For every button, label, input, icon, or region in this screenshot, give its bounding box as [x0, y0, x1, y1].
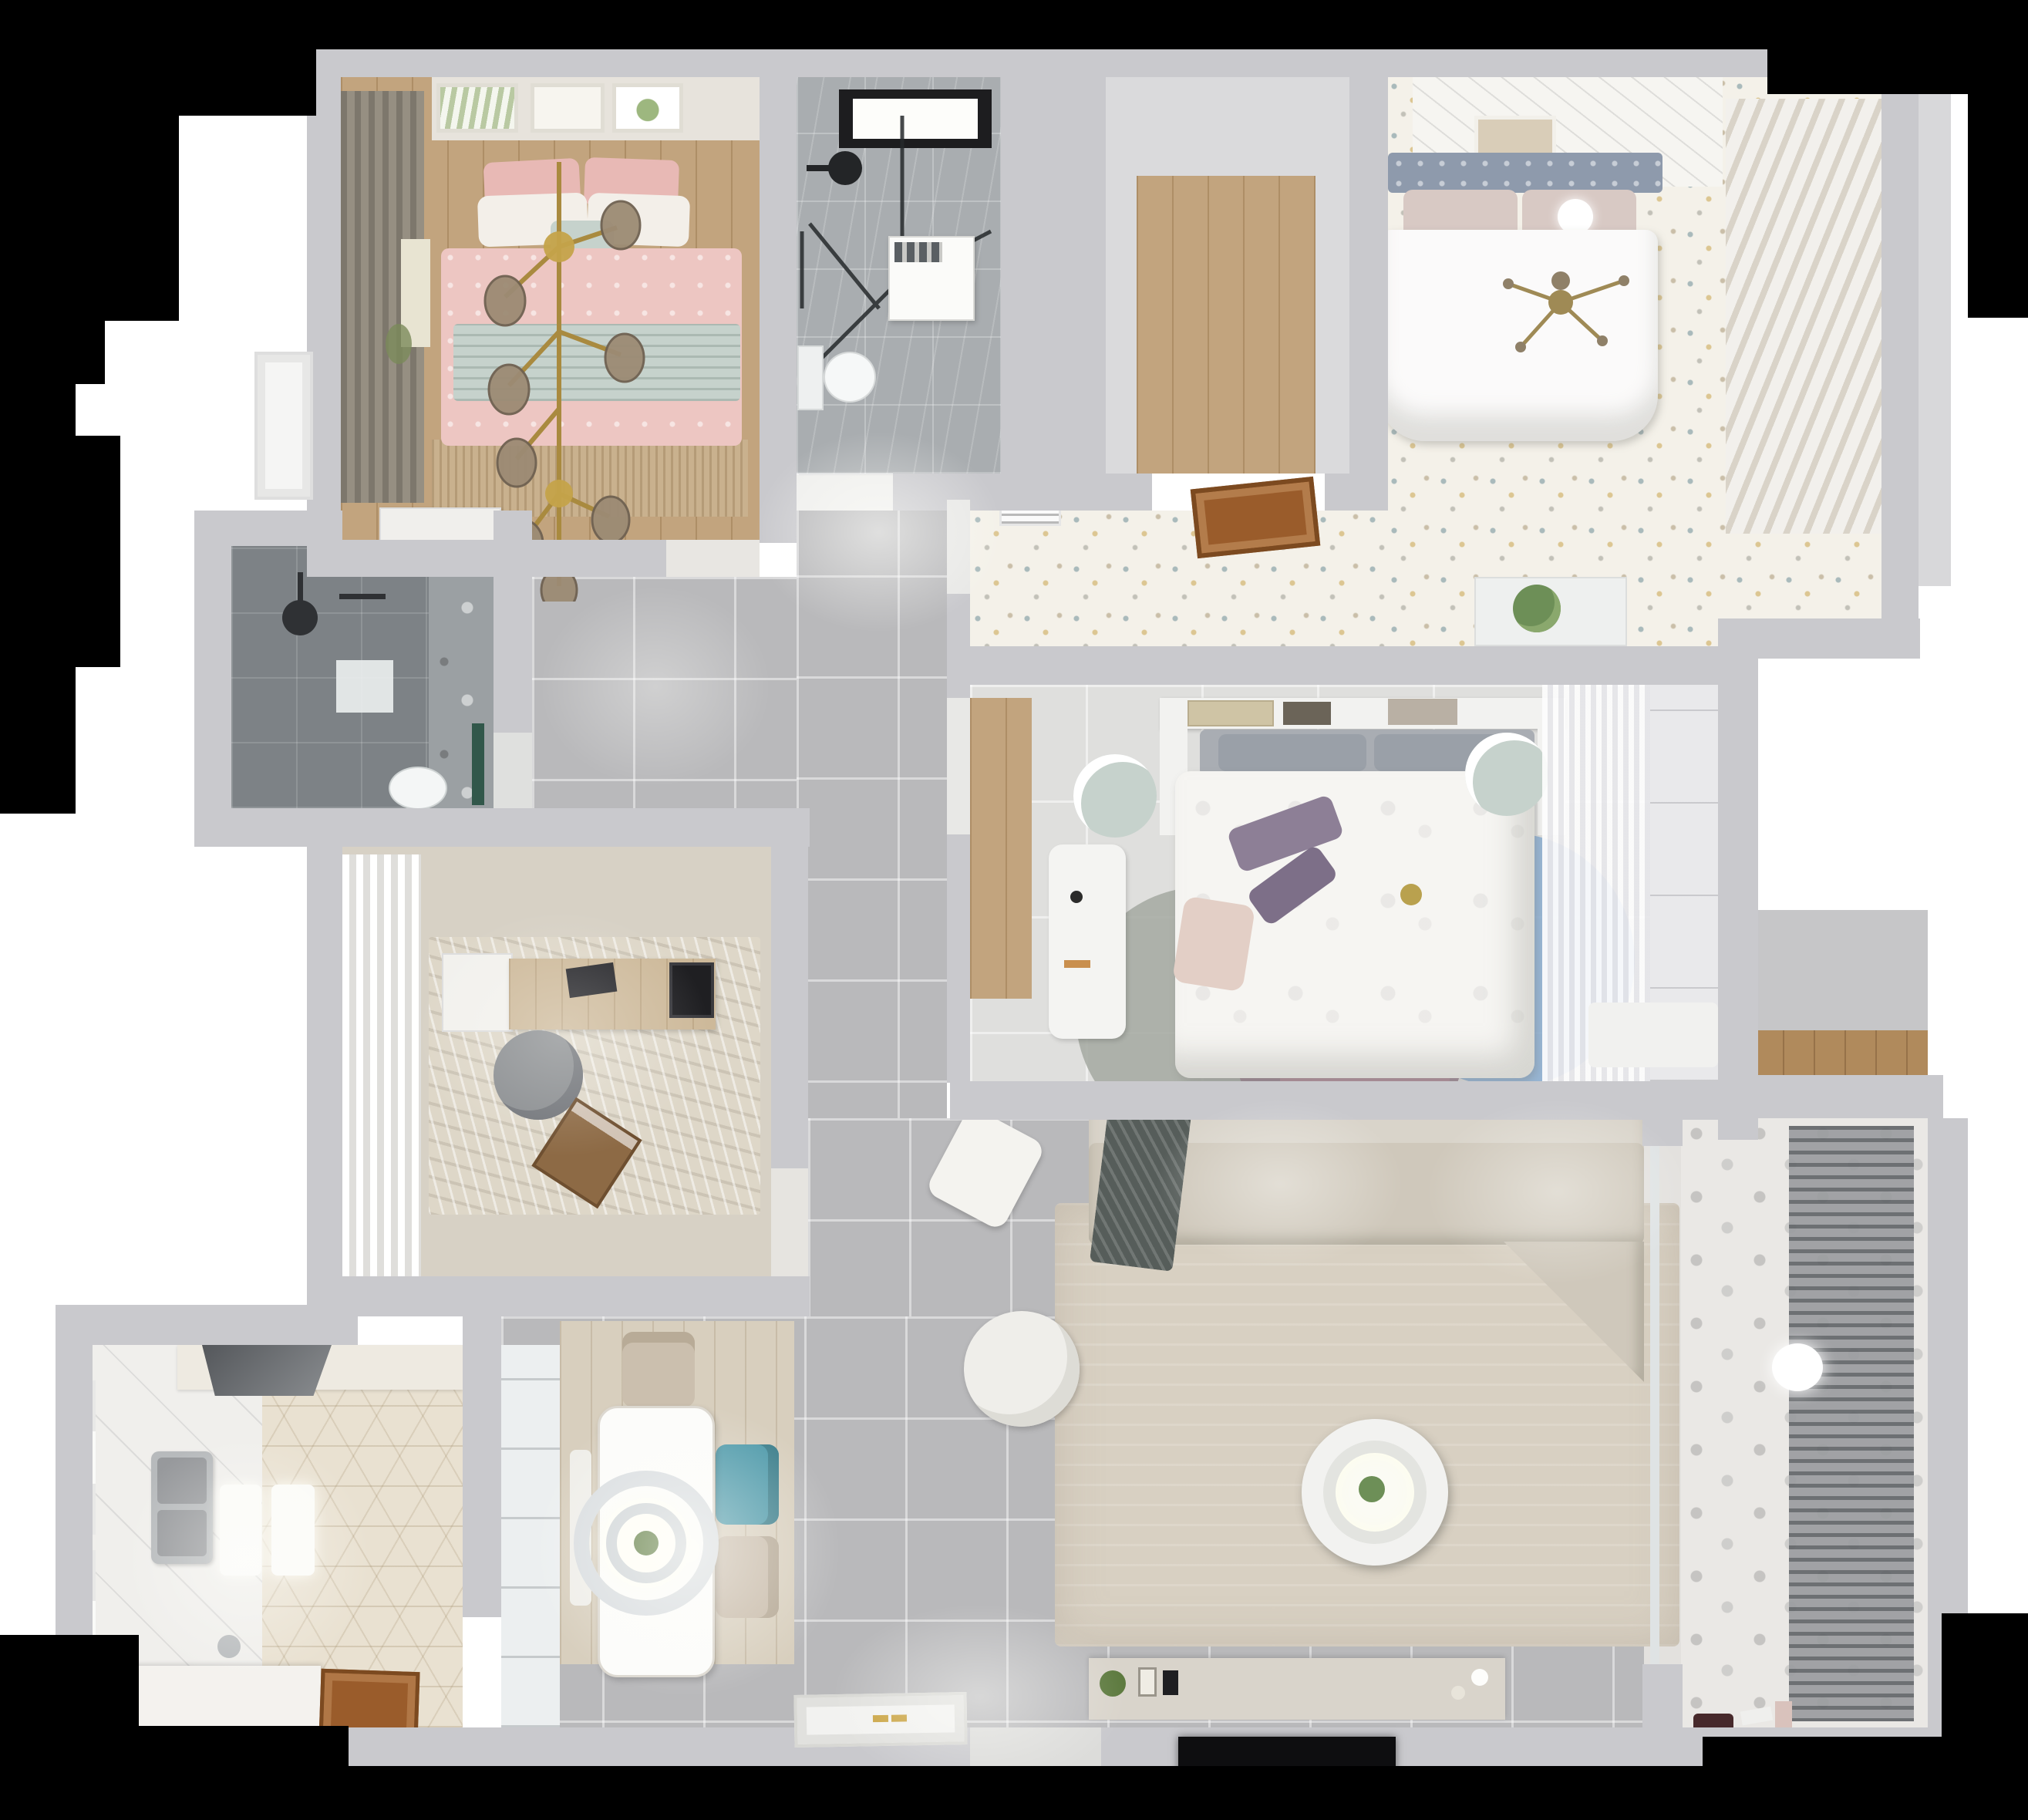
- wall-pink-bedroom-right: [760, 48, 797, 543]
- balcony-wood-shelf: [1752, 1030, 1928, 1075]
- console-plant: [1100, 1670, 1126, 1697]
- ornate-entry-door-panel: [793, 1692, 967, 1748]
- wall-art-leaf-1: [436, 83, 518, 133]
- gold-handle-1: [873, 1715, 888, 1722]
- wall-study-bottom: [307, 1276, 810, 1316]
- gold-sprig: [1400, 884, 1422, 905]
- pendant-plant-center: [634, 1531, 659, 1555]
- pink-bedroom-door-threshold: [666, 540, 760, 577]
- counter-light-panel-2: [271, 1485, 315, 1576]
- bedroom2-wood-wardrobe: [970, 698, 1032, 999]
- wall-shower-study-divider: [194, 808, 810, 847]
- mint-stool-left: [1073, 754, 1157, 838]
- matte-bottom-left-corner: [0, 1635, 139, 1820]
- toilet-tank: [797, 345, 824, 410]
- suite-door-threshold: [947, 500, 970, 594]
- counter-light-panel-1: [220, 1485, 261, 1576]
- wall-art-leaf-2: [612, 83, 683, 133]
- matte-left-strip: [0, 324, 76, 814]
- double-sink: [151, 1451, 213, 1564]
- wall-kitchen-right-a: [463, 1305, 501, 1617]
- study-side-cabinet: [442, 953, 513, 1032]
- potted-plant: [1513, 585, 1561, 632]
- master-wall-art: [1474, 116, 1556, 157]
- desk-item: [1070, 891, 1083, 903]
- master-headboard: [1388, 153, 1662, 193]
- wall-balcony-left-bottom: [1642, 1664, 1683, 1775]
- wall-closet-right: [1349, 48, 1388, 511]
- blush-pillow: [1172, 895, 1255, 992]
- wall-outer-left-b: [194, 544, 231, 816]
- toilet-2: [389, 767, 447, 810]
- wood-hatch-panel: [1191, 477, 1321, 558]
- balcony-glass-door: [1650, 1146, 1659, 1664]
- gold-cross-chandelier: [1487, 254, 1641, 362]
- sink-basin-1: [157, 1458, 207, 1504]
- bathroom-door-threshold: [797, 475, 894, 511]
- balcony-pink-item: [1775, 1701, 1792, 1727]
- books-stack-1: [1187, 700, 1274, 726]
- shower-mat: [336, 660, 393, 713]
- bedroom2-white-mat: [1588, 1003, 1718, 1067]
- hall-floor-shower-wing: [532, 577, 797, 808]
- study-door-threshold: [771, 1168, 808, 1276]
- wall-kitchen-top: [56, 1305, 358, 1345]
- green-glass-screen: [472, 723, 484, 805]
- master-louver-wardrobe: [1726, 99, 1881, 534]
- drying-rack-louvers: [1789, 1126, 1914, 1721]
- wall-corridor-right-stub: [947, 474, 970, 500]
- console-frame-2: [1163, 1670, 1178, 1695]
- shower-arm: [807, 165, 833, 171]
- ceiling-shower-head-2: [282, 600, 318, 635]
- dining-chair-top: [622, 1332, 695, 1407]
- shower-stem: [298, 572, 303, 605]
- gold-handle-2: [891, 1714, 907, 1721]
- balcony-niche: [1752, 910, 1928, 1030]
- counter-faucet: [217, 1635, 241, 1658]
- wall-pink-bedroom-bottom: [307, 540, 666, 577]
- wall-bedroom2-bottom: [950, 1081, 1721, 1120]
- tv-console: [1089, 1658, 1505, 1720]
- bedroom2-desk: [1049, 844, 1126, 1039]
- wall-shower-right: [494, 511, 532, 733]
- dining-chair-beige: [716, 1536, 779, 1618]
- console-vase-2: [1451, 1686, 1465, 1700]
- wall-outer-right-top: [1881, 48, 1919, 659]
- wall-balcony-left-top: [1642, 1118, 1683, 1146]
- sink-basin-2: [157, 1510, 207, 1556]
- wall-closet-bottom-a: [1106, 474, 1152, 511]
- matte-right-corner: [1942, 1613, 2028, 1820]
- shower-valve-bar: [339, 594, 386, 599]
- books-stack-2: [1283, 702, 1331, 725]
- dining-chair-teal: [716, 1444, 779, 1525]
- dining-tall-cabinet: [501, 1345, 560, 1727]
- console-frame-1: [1138, 1667, 1157, 1697]
- bedroom2-door-threshold: [947, 698, 970, 834]
- toilet-bowl: [824, 352, 876, 403]
- wall-outer-left-c: [307, 845, 342, 1282]
- wall-bath-closet-shaft: [1001, 48, 1106, 511]
- console-vase-1: [1471, 1669, 1488, 1686]
- plant-glimpse: [386, 324, 412, 364]
- study-white-curtains: [342, 854, 421, 1277]
- wall-bathroom-bottom: [893, 474, 1106, 511]
- white-pouf-chair: [964, 1311, 1080, 1427]
- exterior-ledge: [1919, 93, 1951, 586]
- washing-machine: [888, 236, 975, 321]
- washer-control-panel: [894, 242, 942, 262]
- wall-bedroom2-top: [950, 646, 1720, 685]
- wall-closet-bottom-b: [1325, 474, 1388, 511]
- balcony-sphere-light: [1772, 1343, 1823, 1391]
- kitchen-lower-counter: [119, 1666, 321, 1734]
- mint-stool-right: [1465, 733, 1548, 816]
- white-dresser: [379, 507, 501, 543]
- closet-wood-panel: [1137, 176, 1316, 474]
- exterior-white-door: [254, 352, 313, 500]
- desk-pencils: [1064, 960, 1090, 968]
- matte-left-step: [74, 436, 120, 667]
- matte-top-left-c: [100, 114, 179, 321]
- matte-top-right-b: [1968, 0, 2028, 318]
- wall-corridor-right-b: [947, 834, 970, 1083]
- shower-room-threshold: [494, 733, 532, 808]
- range-hood: [202, 1345, 332, 1396]
- corridor-floor: [797, 474, 947, 1122]
- floorplan-render: [0, 0, 2028, 1820]
- wall-corridor-right-a: [947, 594, 970, 698]
- coffee-table-plant: [1359, 1476, 1385, 1502]
- wall-art-script: [531, 83, 605, 133]
- wall-study-right: [771, 847, 808, 1168]
- desk-shelf-frames: [669, 962, 714, 1018]
- wall-niche-left: [1718, 910, 1752, 1118]
- black-shower-head: [828, 151, 862, 185]
- books-stack-3: [1388, 699, 1457, 725]
- gray-pillow-left: [1218, 734, 1366, 771]
